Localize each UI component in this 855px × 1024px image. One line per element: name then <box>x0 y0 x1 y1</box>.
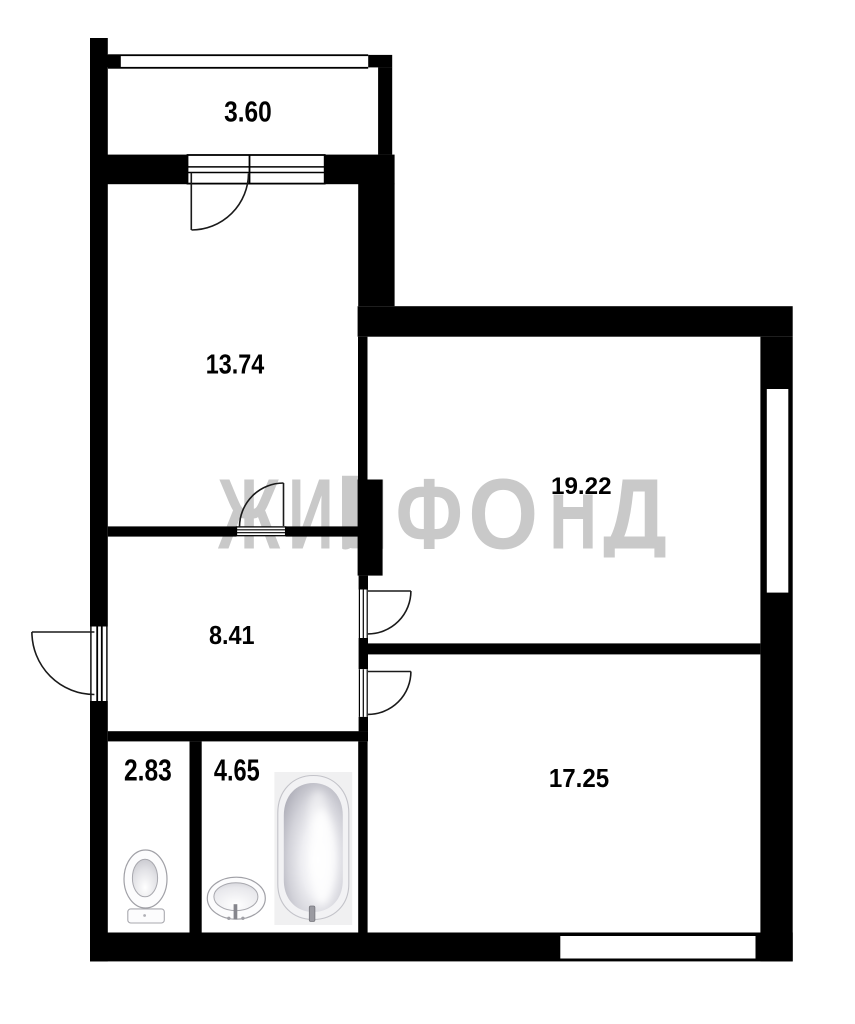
svg-text:3.60: 3.60 <box>224 97 272 129</box>
svg-text:17.25: 17.25 <box>549 763 609 793</box>
svg-text:Ж: Ж <box>217 459 280 571</box>
svg-text:19.22: 19.22 <box>551 473 612 500</box>
svg-text:13.74: 13.74 <box>206 349 265 380</box>
svg-text:Ф: Ф <box>396 459 463 571</box>
svg-text:4.65: 4.65 <box>214 753 260 788</box>
svg-text:О: О <box>468 459 538 571</box>
svg-text:И: И <box>288 459 334 571</box>
svg-text:8.41: 8.41 <box>209 622 255 650</box>
svg-text:2.83: 2.83 <box>124 753 172 788</box>
